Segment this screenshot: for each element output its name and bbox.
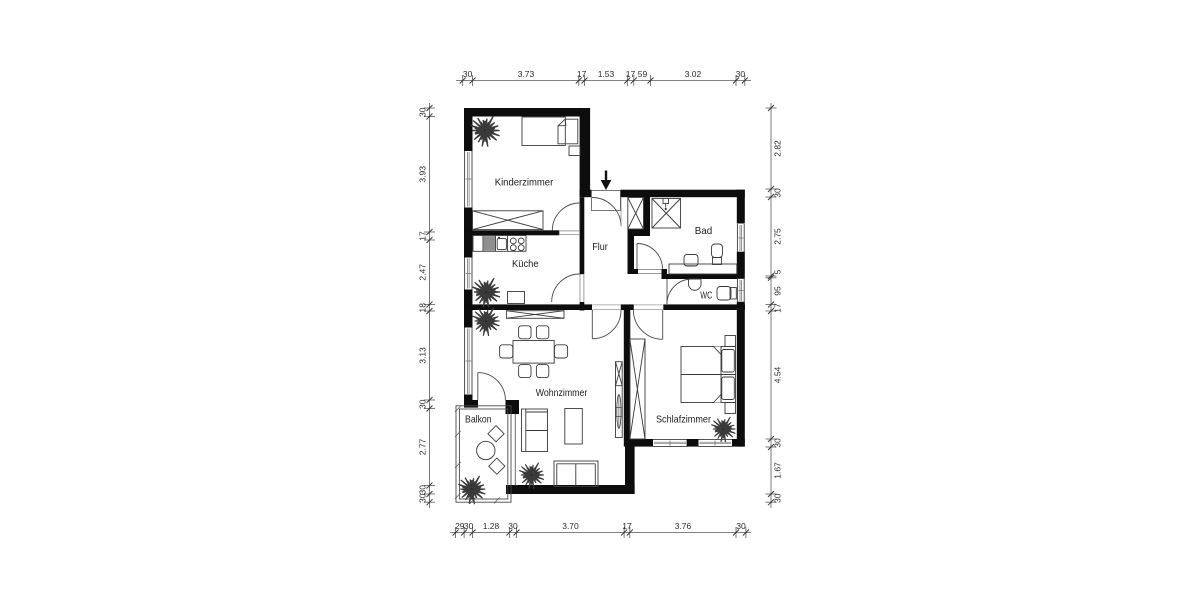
svg-text:1.53: 1.53 xyxy=(598,69,615,79)
svg-text:1.28: 1.28 xyxy=(483,521,500,531)
svg-text:2.77: 2.77 xyxy=(418,438,428,455)
svg-text:2.75: 2.75 xyxy=(773,228,783,245)
svg-text:Schlafzimmer: Schlafzimmer xyxy=(656,415,712,426)
svg-text:17: 17 xyxy=(418,231,428,241)
svg-text:30: 30 xyxy=(418,107,428,117)
svg-text:5: 5 xyxy=(773,269,783,274)
svg-text:3.02: 3.02 xyxy=(685,69,702,79)
svg-text:3.13: 3.13 xyxy=(418,347,428,364)
svg-text:30: 30 xyxy=(773,438,783,448)
svg-text:3.70: 3.70 xyxy=(562,521,579,531)
svg-text:30: 30 xyxy=(418,399,428,409)
svg-text:17: 17 xyxy=(577,69,587,79)
svg-text:WC: WC xyxy=(700,290,712,301)
svg-text:Küche: Küche xyxy=(512,259,539,270)
svg-text:30: 30 xyxy=(418,485,428,495)
svg-text:2.82: 2.82 xyxy=(773,140,783,157)
svg-text:30: 30 xyxy=(773,188,783,198)
svg-text:17: 17 xyxy=(626,69,636,79)
svg-text:30: 30 xyxy=(418,493,428,503)
svg-text:59: 59 xyxy=(638,69,648,79)
svg-text:Kinderzimmer: Kinderzimmer xyxy=(495,177,554,188)
svg-text:30: 30 xyxy=(736,521,746,531)
svg-text:17: 17 xyxy=(773,303,783,313)
svg-text:30: 30 xyxy=(464,521,474,531)
svg-text:Bad: Bad xyxy=(695,226,713,237)
svg-text:Wohnzimmer: Wohnzimmer xyxy=(536,388,588,399)
svg-text:95: 95 xyxy=(773,286,783,296)
svg-text:30: 30 xyxy=(736,69,746,79)
svg-text:30: 30 xyxy=(463,69,473,79)
svg-text:2.47: 2.47 xyxy=(418,264,428,281)
svg-text:3.73: 3.73 xyxy=(518,69,535,79)
svg-text:4.54: 4.54 xyxy=(773,366,783,383)
svg-text:18: 18 xyxy=(418,303,428,313)
svg-text:30: 30 xyxy=(508,521,518,531)
svg-text:30: 30 xyxy=(773,493,783,503)
svg-text:3.93: 3.93 xyxy=(418,166,428,183)
svg-text:Balkon: Balkon xyxy=(465,415,492,426)
svg-text:1.67: 1.67 xyxy=(773,462,783,479)
svg-text:17: 17 xyxy=(622,521,632,531)
svg-text:Flur: Flur xyxy=(592,242,608,253)
svg-text:3.76: 3.76 xyxy=(675,521,692,531)
